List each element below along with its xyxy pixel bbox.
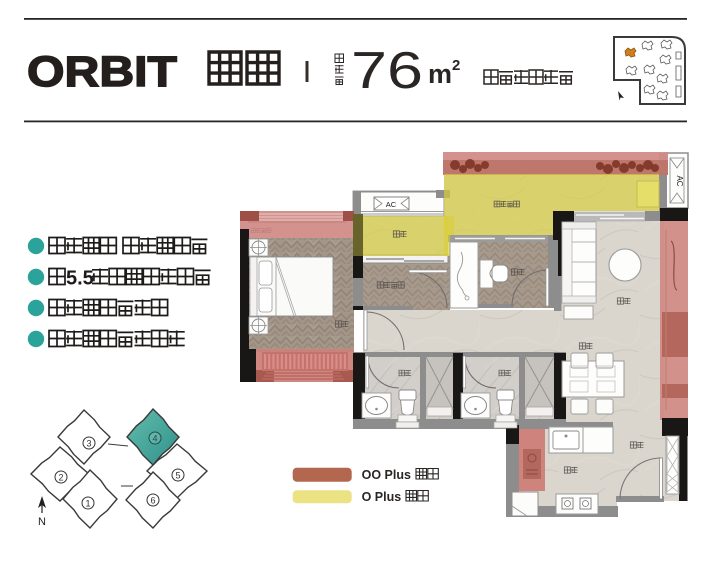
svg-text:2: 2 [452, 57, 460, 74]
svg-text:AC: AC [386, 200, 397, 209]
svg-text:2: 2 [58, 472, 63, 482]
svg-text:5.5: 5.5 [66, 268, 94, 290]
svg-text:6: 6 [150, 495, 155, 505]
svg-text:ORBIT: ORBIT [27, 48, 177, 96]
svg-text:O Plus: O Plus [362, 490, 402, 504]
svg-text:76: 76 [351, 42, 423, 100]
svg-text:N: N [38, 516, 46, 528]
svg-text:1: 1 [85, 498, 90, 508]
svg-text:OO Plus: OO Plus [362, 468, 411, 482]
svg-text:AC: AC [675, 175, 684, 186]
svg-text:3: 3 [86, 438, 91, 448]
svg-text:m: m [428, 59, 452, 89]
svg-text:4: 4 [152, 433, 157, 443]
svg-text:5: 5 [175, 470, 180, 480]
